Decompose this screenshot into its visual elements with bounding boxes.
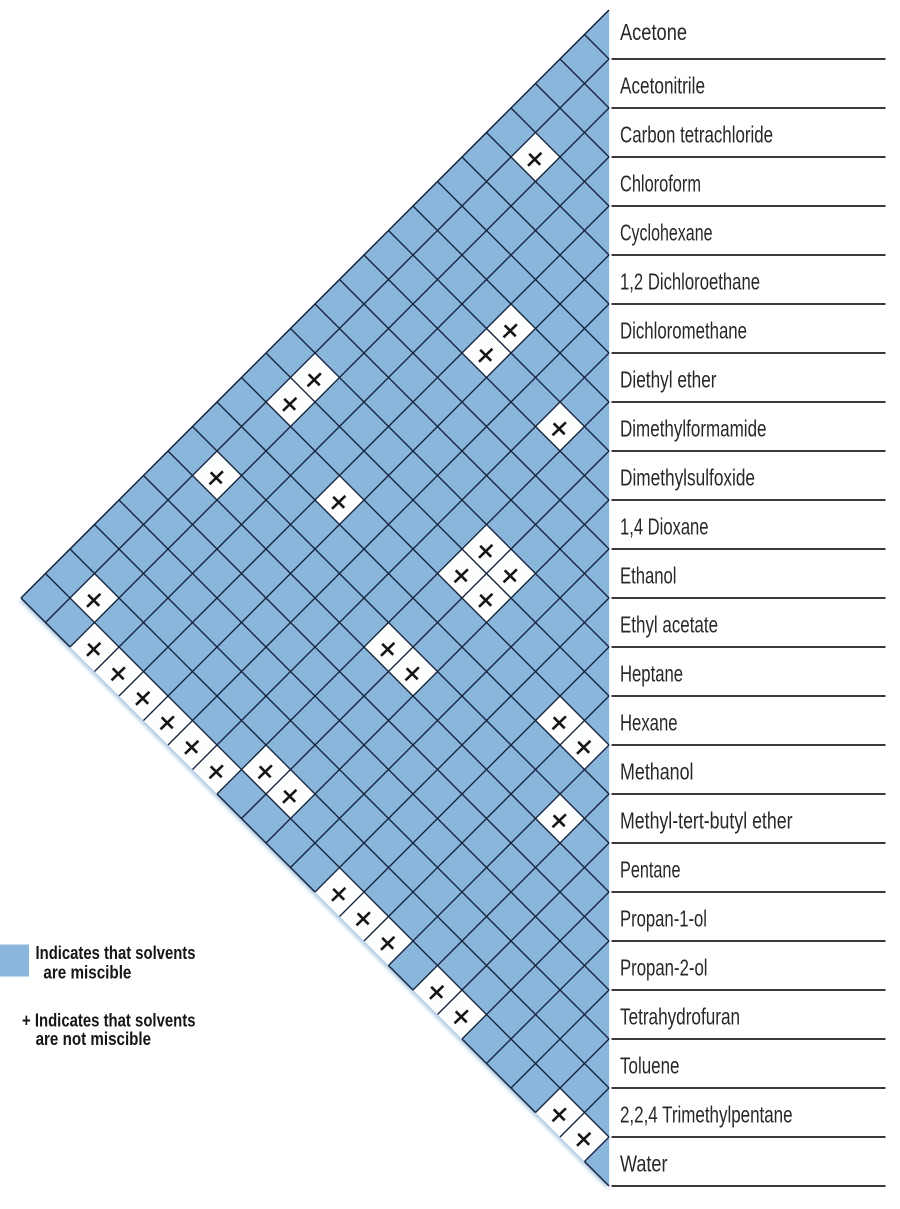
svg-text:Dimethylsulfoxide: Dimethylsulfoxide <box>620 465 755 491</box>
svg-text:Acetonitrile: Acetonitrile <box>620 73 705 99</box>
svg-text:1,4 Dioxane: 1,4 Dioxane <box>620 514 709 540</box>
svg-text:Diethyl ether: Diethyl ether <box>620 367 717 393</box>
svg-text:Heptane: Heptane <box>620 661 683 687</box>
svg-text:are not miscible: are not miscible <box>36 1029 151 1049</box>
svg-text:+ Indicates that solvents: + Indicates that solvents <box>22 1011 196 1031</box>
svg-text:Chloroform: Chloroform <box>620 171 701 197</box>
svg-text:2,2,4 Trimethylpentane: 2,2,4 Trimethylpentane <box>620 1102 793 1128</box>
svg-text:Indicates that solvents: Indicates that solvents <box>36 943 196 963</box>
svg-text:Cyclohexane: Cyclohexane <box>620 220 713 246</box>
svg-text:Acetone: Acetone <box>620 19 687 45</box>
svg-text:Pentane: Pentane <box>620 857 681 883</box>
svg-text:Propan-1-ol: Propan-1-ol <box>620 906 707 932</box>
svg-text:Methyl-tert-butyl ether: Methyl-tert-butyl ether <box>620 808 793 834</box>
svg-text:Hexane: Hexane <box>620 710 678 736</box>
svg-text:Water: Water <box>620 1151 668 1177</box>
svg-text:Methanol: Methanol <box>620 759 694 785</box>
svg-text:Propan-2-ol: Propan-2-ol <box>620 955 708 981</box>
svg-text:Dichloromethane: Dichloromethane <box>620 318 747 344</box>
svg-text:1,2 Dichloroethane: 1,2 Dichloroethane <box>620 269 760 295</box>
svg-text:Ethanol: Ethanol <box>620 563 677 589</box>
svg-text:are miscible: are miscible <box>43 963 131 983</box>
svg-text:Toluene: Toluene <box>620 1053 680 1079</box>
svg-text:Dimethylformamide: Dimethylformamide <box>620 416 767 442</box>
svg-text:Ethyl acetate: Ethyl acetate <box>620 612 718 638</box>
svg-text:Carbon tetrachloride: Carbon tetrachloride <box>620 122 773 148</box>
svg-text:Tetrahydrofuran: Tetrahydrofuran <box>620 1004 740 1030</box>
